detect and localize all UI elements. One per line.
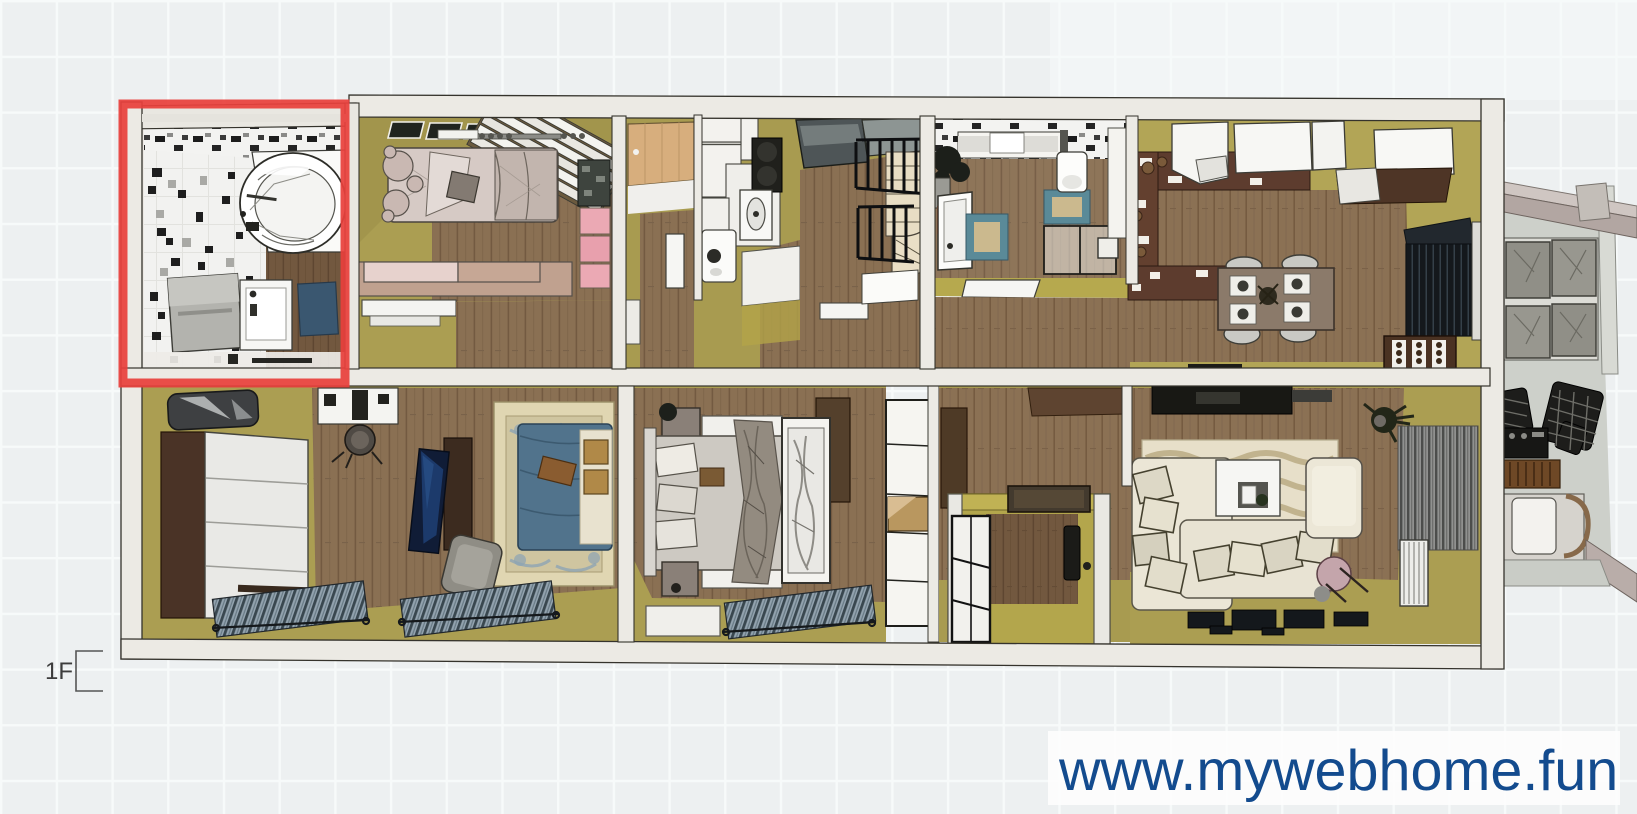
svg-text:1F: 1F (45, 658, 73, 685)
svg-text:www.mywebhome.fun: www.mywebhome.fun (1058, 739, 1618, 803)
